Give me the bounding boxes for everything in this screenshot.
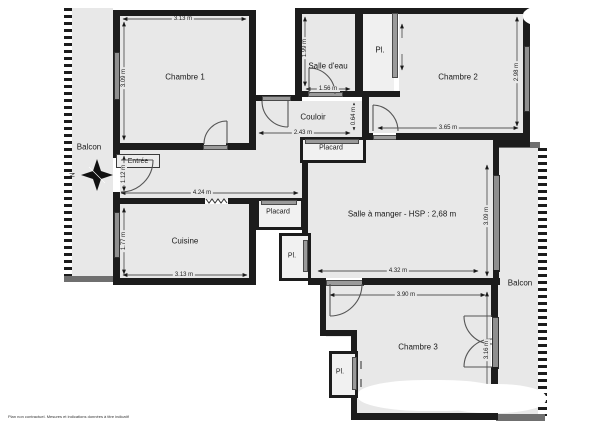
dim-salle-deau-height: 1.99 m	[302, 37, 308, 59]
sliding-door	[261, 200, 297, 205]
wall	[491, 285, 498, 317]
room-label-chambre3: Chambre 3	[398, 343, 438, 352]
balcony-left-outer-wall	[64, 8, 72, 280]
room-label-balcon-droit: Balcon	[508, 279, 532, 288]
balcony-right-outer-wall	[538, 148, 547, 416]
balcony-right-end-wall	[496, 414, 545, 421]
dim-couloir-height: 0.64 m	[351, 105, 357, 127]
dim-hall-width: 4.24 m	[191, 190, 213, 196]
room-label-placard-haut: Pl.	[375, 46, 384, 55]
wall	[113, 143, 204, 150]
compass-north-label: N	[70, 172, 77, 177]
salle-deau-floor	[301, 14, 355, 93]
window	[524, 46, 530, 112]
dim-chambre3-height: 3.16 m	[484, 339, 490, 361]
white-patch	[523, 3, 607, 29]
room-label-salle-deau: Salle d'eau	[308, 62, 347, 71]
sliding-door	[352, 357, 357, 390]
room-label-salle-a-manger: Salle à manger - HSP : 2,68 m	[348, 210, 456, 219]
room-label-chambre2: Chambre 2	[438, 73, 478, 82]
wall	[226, 143, 256, 150]
balcony-door-glazing	[492, 317, 499, 369]
wall	[362, 8, 530, 14]
dim-chambre1-width: 3.13 m	[172, 16, 194, 22]
dim-chambre3-width: 3.90 m	[395, 292, 417, 298]
wall	[366, 133, 373, 140]
room-label-cuisine: Cuisine	[172, 237, 199, 246]
wall	[493, 140, 530, 147]
dim-cuisine-width: 3.13 m	[173, 272, 195, 278]
dim-salle-a-manger-width: 4.32 m	[387, 268, 409, 274]
wall	[249, 198, 256, 285]
wall	[355, 8, 363, 97]
door-threshold	[373, 135, 398, 140]
window	[493, 175, 500, 272]
window	[114, 212, 120, 258]
dim-chambre2-width: 3.65 m	[437, 125, 459, 131]
window-threshold	[262, 96, 291, 101]
sliding-door	[303, 240, 308, 272]
chambre2-floor-west	[369, 95, 399, 133]
sliding-door	[392, 13, 398, 78]
balcony-left-end-wall	[64, 276, 120, 282]
plan-disclaimer: Plan non contractuel. Mesures et indicat…	[8, 414, 129, 419]
dim-chambre1-height: 3.09 m	[121, 67, 127, 89]
door-threshold	[203, 145, 228, 150]
dim-chambre2-height: 2.98 m	[514, 61, 520, 83]
wall	[340, 91, 363, 97]
dim-entree-height: 1.12 m	[121, 163, 127, 185]
sliding-door	[305, 139, 359, 144]
wall	[362, 278, 500, 285]
dim-couloir-width: 2.43 m	[292, 130, 314, 136]
wall	[249, 10, 256, 150]
window	[114, 52, 120, 100]
dim-salle-a-manger-height: 3.09 m	[484, 205, 490, 227]
entree-hall-floor	[119, 143, 256, 200]
door-threshold	[326, 280, 364, 286]
wall	[351, 413, 498, 420]
white-patch	[438, 384, 546, 413]
room-label-pl-salle-a-manger: Pl.	[288, 253, 296, 260]
door-threshold	[308, 92, 343, 97]
wall	[320, 285, 326, 336]
wall	[113, 278, 256, 285]
wall	[295, 8, 358, 14]
room-label-pl-chambre3: Pl.	[336, 369, 344, 376]
wall	[396, 133, 530, 140]
wall	[295, 8, 302, 97]
room-label-couloir: Couloir	[300, 113, 325, 122]
room-label-balcon-gauche: Balcon	[77, 143, 101, 152]
dim-salle-deau-width: 1.56 m	[317, 86, 339, 92]
room-label-chambre1: Chambre 1	[165, 73, 205, 82]
room-label-placard-couloir: Placard	[319, 145, 343, 152]
room-label-placard-cuisine: Placard	[266, 209, 290, 216]
dim-cuisine-height: 1.77 m	[121, 230, 127, 252]
wall	[493, 147, 499, 175]
floor-plan: Entrée	[0, 0, 609, 430]
room-label-entree: Entrée	[128, 158, 149, 165]
wall	[113, 198, 205, 204]
